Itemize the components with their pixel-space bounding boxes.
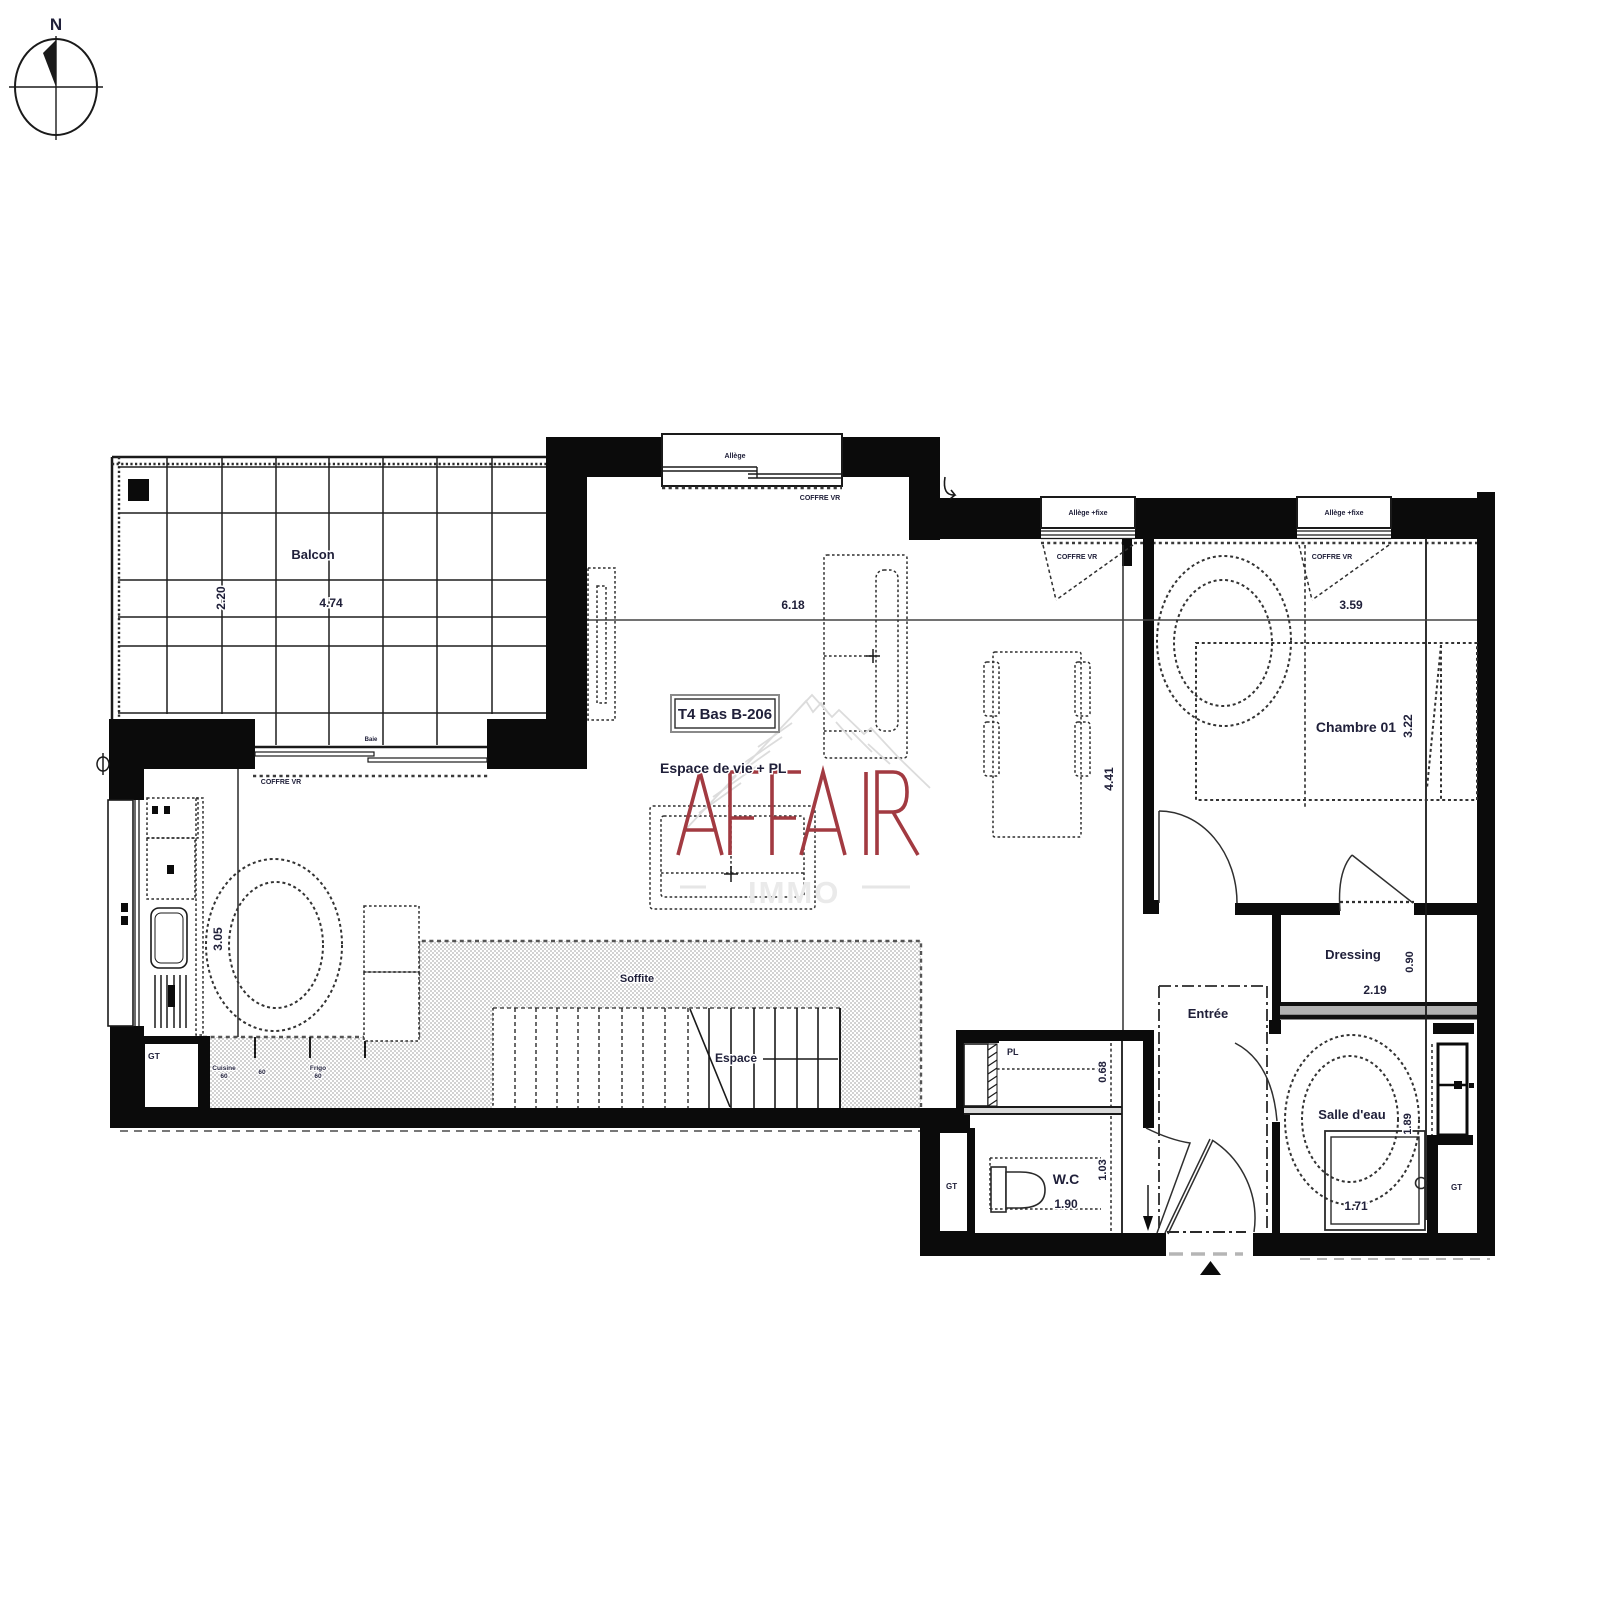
- svg-text:2.19: 2.19: [1363, 983, 1387, 997]
- svg-text:1.89: 1.89: [1402, 1113, 1414, 1134]
- svg-text:3.05: 3.05: [211, 927, 225, 951]
- svg-text:Balcon: Balcon: [291, 547, 334, 562]
- svg-text:60: 60: [220, 1073, 228, 1080]
- svg-text:1.03: 1.03: [1097, 1159, 1109, 1180]
- svg-text:Chambre 01: Chambre 01: [1316, 719, 1396, 735]
- svg-text:1.90: 1.90: [1054, 1197, 1078, 1211]
- svg-text:COFFRE VR: COFFRE VR: [1312, 554, 1352, 561]
- svg-text:W.C: W.C: [1053, 1171, 1079, 1187]
- svg-text:Entrée: Entrée: [1188, 1006, 1228, 1021]
- svg-text:6.18: 6.18: [781, 598, 805, 612]
- svg-text:PL: PL: [1007, 1047, 1019, 1057]
- svg-text:0.90: 0.90: [1404, 951, 1416, 972]
- svg-text:Allège +fixe: Allège +fixe: [1068, 510, 1107, 517]
- svg-text:0.68: 0.68: [1097, 1061, 1109, 1082]
- svg-text:2.20: 2.20: [214, 586, 228, 610]
- svg-text:Espace: Espace: [715, 1051, 757, 1065]
- svg-text:1.71: 1.71: [1344, 1199, 1368, 1213]
- svg-text:Frigo: Frigo: [310, 1065, 326, 1072]
- svg-text:Espace de vie + PL: Espace de vie + PL: [660, 760, 787, 776]
- svg-text:GT: GT: [1451, 1183, 1462, 1192]
- svg-text:COFFRE VR: COFFRE VR: [261, 779, 301, 786]
- svg-text:Dressing: Dressing: [1325, 947, 1381, 962]
- svg-text:Salle d'eau: Salle d'eau: [1318, 1107, 1385, 1122]
- svg-text:Allège +fixe: Allège +fixe: [1324, 510, 1363, 517]
- svg-text:N: N: [50, 15, 62, 34]
- svg-text:COFFRE VR: COFFRE VR: [1057, 554, 1097, 561]
- svg-text:Allège: Allège: [724, 453, 745, 460]
- svg-text:Soffite: Soffite: [620, 973, 654, 985]
- svg-text:60: 60: [314, 1073, 322, 1080]
- svg-text:COFFRE VR: COFFRE VR: [800, 495, 840, 502]
- svg-text:GT: GT: [946, 1182, 957, 1191]
- svg-text:4.74: 4.74: [319, 596, 343, 610]
- svg-text:Baie: Baie: [365, 737, 378, 743]
- svg-text:3.22: 3.22: [1401, 714, 1415, 738]
- svg-text:GT: GT: [148, 1051, 161, 1061]
- svg-text:3.59: 3.59: [1339, 598, 1363, 612]
- svg-text:60: 60: [258, 1069, 266, 1076]
- svg-text:IMMO: IMMO: [748, 875, 840, 910]
- svg-text:4.41: 4.41: [1102, 767, 1116, 791]
- svg-text:Cuisine: Cuisine: [212, 1065, 236, 1072]
- svg-text:T4 Bas B-206: T4 Bas B-206: [678, 706, 772, 723]
